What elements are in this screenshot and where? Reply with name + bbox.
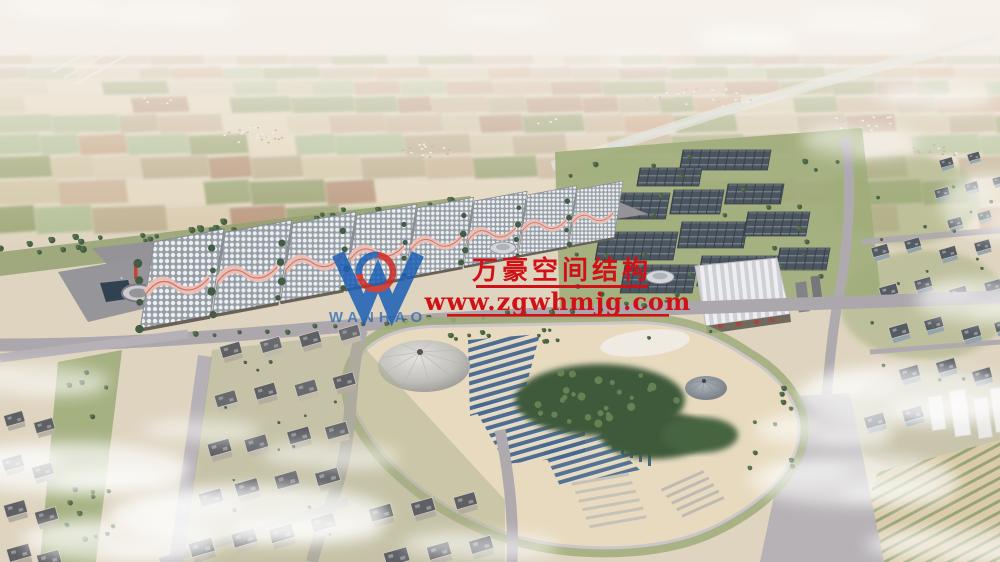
watermark-company-name: 万豪空间结构 (472, 255, 652, 286)
aerial-rendering: WANHAO 万豪空间结构 www.zgwhmjg.com (0, 0, 1000, 562)
rendering-canvas: WANHAO 万豪空间结构 www.zgwhmjg.com (0, 0, 1000, 562)
watermark-logo-text: WANHAO (329, 309, 427, 326)
url-underline (447, 314, 669, 317)
watermark-url: www.zgwhmjg.com (424, 287, 692, 316)
